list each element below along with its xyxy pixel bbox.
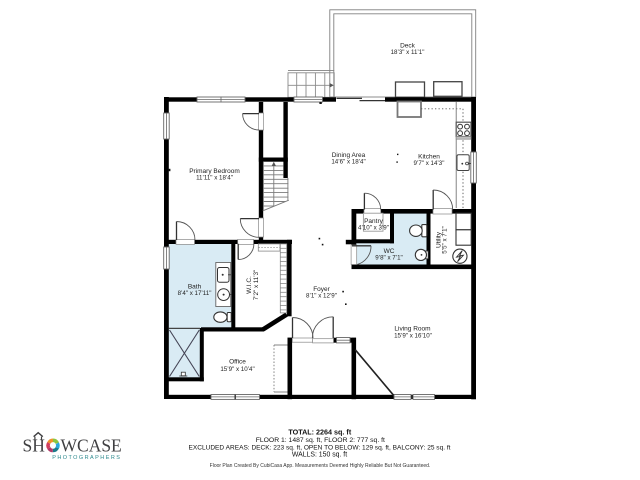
- svg-text:SH: SH: [23, 436, 46, 456]
- svg-text:Floor Plan Created By CubiCasa: Floor Plan Created By CubiCasa App. Meas…: [210, 463, 431, 469]
- svg-text:9’7" x 14’3": 9’7" x 14’3": [414, 160, 445, 167]
- svg-text:WCASE: WCASE: [61, 436, 122, 456]
- svg-text:9’8" x 7’1": 9’8" x 7’1": [375, 254, 402, 261]
- svg-text:8’1" x 12’9": 8’1" x 12’9": [306, 293, 337, 300]
- svg-text:WALLS: 150 sq. ft: WALLS: 150 sq. ft: [292, 452, 347, 459]
- svg-text:Office: Office: [229, 359, 246, 366]
- svg-text:W.I.C.: W.I.C.: [246, 276, 253, 294]
- svg-text:8’4" x 17’11": 8’4" x 17’11": [178, 290, 212, 297]
- svg-text:15’9" x 16’10": 15’9" x 16’10": [394, 332, 432, 339]
- svg-text:11’11" x 18’4": 11’11" x 18’4": [196, 175, 233, 182]
- svg-text:FLOOR 1: 1487 sq. ft, FLOOR 2:: FLOOR 1: 1487 sq. ft, FLOOR 2: 777 sq. f…: [256, 437, 385, 444]
- svg-text:EXCLUDED AREAS: DECK: 223 sq.: EXCLUDED AREAS: DECK: 223 sq. ft, OPEN T…: [189, 445, 451, 452]
- svg-text:5’5" x 7’1": 5’5" x 7’1": [441, 226, 448, 253]
- svg-text:TOTAL: 2264 sq. ft: TOTAL: 2264 sq. ft: [288, 428, 351, 437]
- svg-text:7’2" x 11’3": 7’2" x 11’3": [253, 270, 260, 300]
- svg-text:4’10" x 3’9": 4’10" x 3’9": [358, 224, 389, 231]
- svg-text:14’6" x 18’4": 14’6" x 18’4": [331, 159, 365, 166]
- svg-text:18’3" x 11’1": 18’3" x 11’1": [391, 49, 425, 56]
- svg-text:PHOTOGRAPHERS: PHOTOGRAPHERS: [52, 455, 121, 461]
- svg-text:15’9" x 10’4": 15’9" x 10’4": [220, 366, 254, 373]
